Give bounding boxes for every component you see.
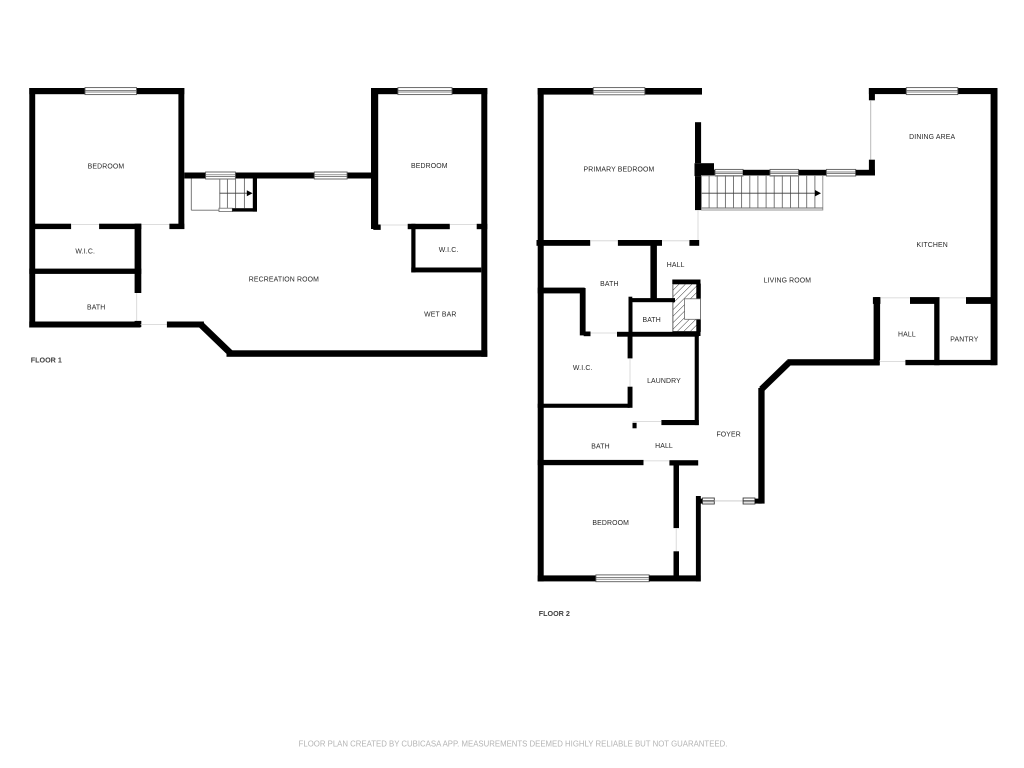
svg-text:WET BAR: WET BAR bbox=[424, 312, 456, 319]
svg-text:FLOOR 2: FLOOR 2 bbox=[539, 609, 570, 618]
svg-text:W.I.C.: W.I.C. bbox=[439, 247, 459, 254]
svg-text:FLOOR 1: FLOOR 1 bbox=[31, 355, 62, 364]
svg-text:KITCHEN: KITCHEN bbox=[917, 242, 948, 249]
svg-text:HALL: HALL bbox=[898, 331, 916, 338]
svg-text:PANTRY: PANTRY bbox=[950, 337, 978, 344]
svg-text:RECREATION ROOM: RECREATION ROOM bbox=[249, 276, 319, 283]
svg-text:BATH: BATH bbox=[600, 281, 618, 288]
svg-text:BATH: BATH bbox=[642, 317, 660, 324]
svg-text:BEDROOM: BEDROOM bbox=[411, 163, 448, 170]
svg-text:BATH: BATH bbox=[87, 304, 105, 311]
svg-text:BEDROOM: BEDROOM bbox=[592, 520, 629, 527]
svg-text:HALL: HALL bbox=[667, 262, 685, 269]
svg-text:PRIMARY BEDROOM: PRIMARY BEDROOM bbox=[584, 167, 655, 174]
svg-text:HALL: HALL bbox=[655, 443, 673, 450]
svg-text:W.I.C.: W.I.C. bbox=[75, 249, 95, 256]
svg-text:FOYER: FOYER bbox=[716, 431, 741, 438]
svg-text:FLOOR PLAN CREATED BY CUBICASA: FLOOR PLAN CREATED BY CUBICASA APP. MEAS… bbox=[299, 739, 728, 748]
svg-text:BEDROOM: BEDROOM bbox=[88, 163, 125, 170]
svg-text:LAUNDRY: LAUNDRY bbox=[647, 378, 681, 385]
svg-text:W.I.C.: W.I.C. bbox=[573, 365, 593, 372]
svg-text:LIVING ROOM: LIVING ROOM bbox=[764, 278, 812, 285]
svg-text:BATH: BATH bbox=[591, 443, 609, 450]
svg-text:DINING AREA: DINING AREA bbox=[909, 134, 955, 141]
